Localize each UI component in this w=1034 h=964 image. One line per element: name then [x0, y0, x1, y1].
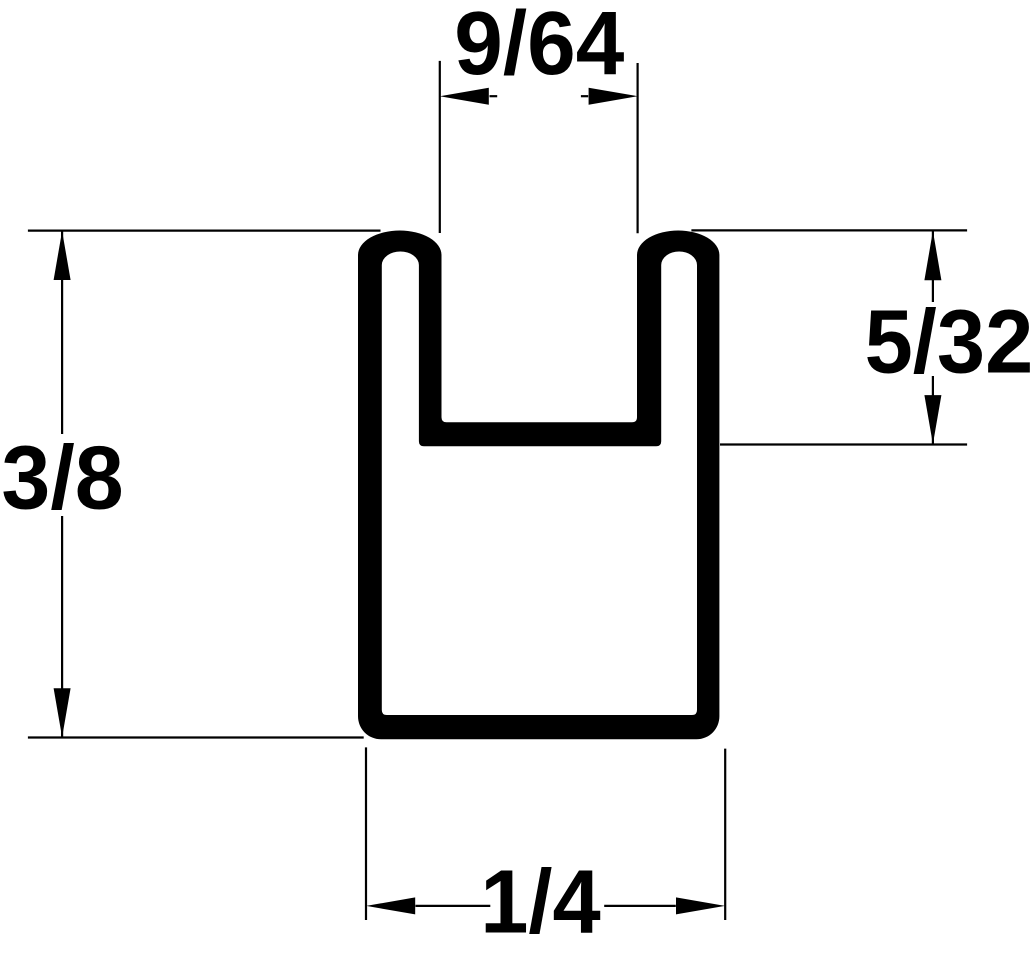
svg-text:1/4: 1/4: [480, 853, 601, 953]
svg-text:5/32: 5/32: [865, 292, 1034, 392]
svg-text:9/64: 9/64: [454, 0, 624, 94]
svg-text:3/8: 3/8: [1, 429, 123, 529]
